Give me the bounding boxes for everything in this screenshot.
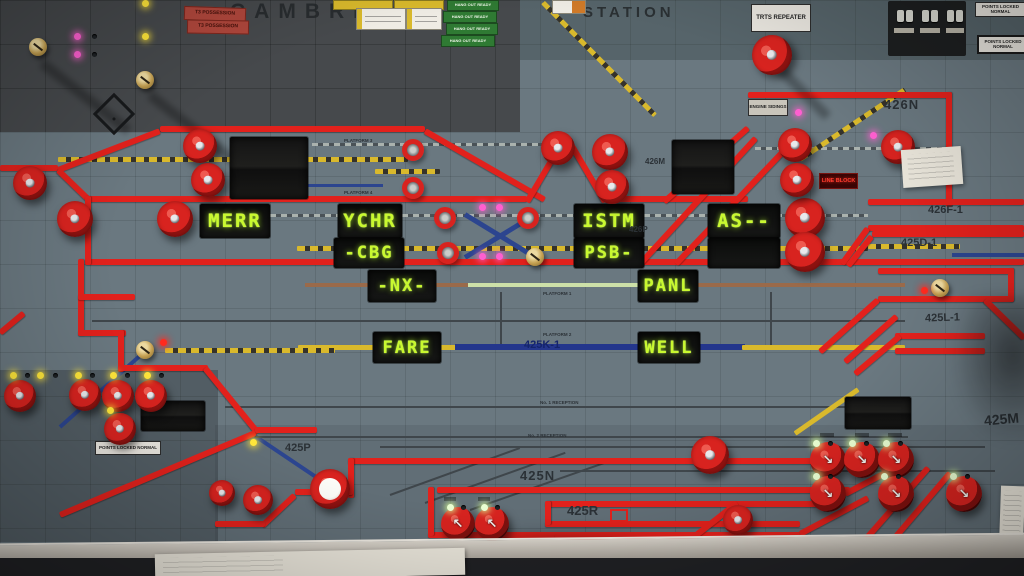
unlit-indicator: [461, 505, 466, 510]
unlit-indicator: [159, 373, 164, 378]
points-arrow-icon: ↖: [453, 517, 464, 532]
red-track-segment: [118, 365, 208, 371]
route-ring-switch[interactable]: [402, 177, 424, 199]
unlit-indicator: [965, 474, 970, 479]
indicator-led-magenta: [496, 204, 503, 211]
describer-code: YCHR: [343, 210, 397, 232]
indicator-led-yellow: [75, 372, 82, 379]
pulled-signal-knob[interactable]: [310, 469, 350, 509]
unlit-indicator: [864, 441, 869, 446]
points-arrow-icon: ↘: [891, 487, 902, 502]
points-arrow-icon: ↘: [857, 453, 868, 468]
hang-out-ready-plate-1: HANG OUT READY: [447, 0, 499, 11]
route-label-425p: 425P: [285, 442, 311, 454]
points-arrow-icon: ↘: [823, 453, 834, 468]
red-track-segment: [78, 294, 135, 300]
block-switch-button[interactable]: [931, 10, 938, 22]
below-desk: [0, 558, 1024, 576]
red-track-segment: [545, 501, 551, 525]
points-switch-knob[interactable]: ↖: [441, 507, 475, 541]
switch-label-tag: [478, 497, 490, 501]
points-locked-plate-1: POINTS LOCKED NORMAL: [975, 2, 1024, 17]
red-track-segment: [57, 128, 161, 172]
console-label-strip: [894, 28, 914, 33]
red-track-segment: [348, 458, 860, 464]
indicator-led-magenta: [479, 253, 486, 260]
unlit-indicator: [896, 474, 901, 479]
points-switch-knob[interactable]: ↘: [810, 476, 846, 512]
describer-code: ISTM: [582, 210, 636, 232]
top-strip-shade: [0, 0, 1024, 60]
card-tab: [357, 9, 362, 29]
describer-code: -NX-: [378, 276, 427, 296]
route-label-426f1: 426F-1: [928, 204, 963, 216]
unlit-indicator: [125, 373, 130, 378]
signal-switch-knob[interactable]: [104, 413, 136, 445]
indicator-led-yellow: [142, 0, 149, 7]
indicator-led-yellow: [37, 372, 44, 379]
indicator-led-magenta: [479, 204, 486, 211]
red-track-segment: [1008, 268, 1014, 302]
switch-label-tag: [444, 497, 456, 501]
indicator-led-yellow: [110, 372, 117, 379]
route-label-426n-top: 426N: [884, 97, 919, 112]
unlit-indicator: [25, 373, 30, 378]
platform-label-3: PLATFORM 3: [344, 138, 372, 143]
route-label-425m: 425M: [983, 410, 1019, 429]
indicator-led-yellow: [10, 372, 17, 379]
handwriting: [907, 151, 955, 180]
block-switch-button[interactable]: [947, 10, 954, 22]
track-line: [92, 320, 905, 322]
platform-label-1: PLATFORM 1: [543, 291, 571, 296]
indicator-led-green: [950, 473, 957, 480]
describer-code: PANL: [644, 276, 693, 296]
route-label-425r: 425R: [567, 503, 598, 518]
siding-line: [255, 436, 908, 438]
signal-switch-knob[interactable]: [4, 380, 36, 412]
red-track-segment: [748, 92, 952, 98]
red-track-segment: [895, 333, 985, 339]
train-describer-display-as: AS--: [708, 204, 780, 238]
train-describer-display-fare: FARE: [373, 332, 441, 363]
red-track-segment: [545, 521, 800, 527]
signal-switch-knob[interactable]: [183, 129, 217, 163]
indicator-led-green: [447, 504, 454, 511]
signal-switch-knob[interactable]: [135, 380, 167, 412]
points-arrow-icon: ↘: [891, 453, 902, 468]
switch-label-tag: [820, 433, 834, 437]
points-arrow-icon: ↘: [823, 487, 834, 502]
unlit-indicator: [92, 52, 97, 57]
unlit-indicator: [828, 441, 833, 446]
unlit-indicator: [495, 505, 500, 510]
signal-switch-knob[interactable]: [69, 379, 101, 411]
card-orange-half: [572, 1, 585, 13]
indicator-led-magenta: [74, 33, 81, 40]
signal-switch-knob[interactable]: [13, 166, 47, 200]
route-label-425k1: 425K-1: [524, 339, 560, 351]
indicator-led-green: [481, 504, 488, 511]
describer-code: MERR: [208, 210, 262, 232]
signal-switch-knob[interactable]: [191, 163, 225, 197]
reminder-card: [356, 8, 406, 30]
signal-switch-knob[interactable]: [243, 485, 273, 515]
red-track-segment: [428, 487, 434, 536]
route-label-425d1: 425D-1: [901, 237, 937, 249]
points-arrow-icon: ↘: [959, 487, 970, 502]
reception-label-2: No. 2 RECEPTION: [528, 433, 567, 438]
hang-out-ready-plate-4: HANG OUT READY: [441, 35, 495, 47]
red-track-segment: [853, 334, 902, 377]
unlit-indicator: [92, 34, 97, 39]
card-tab: [407, 9, 412, 29]
train-describer-display-well: WELL: [638, 332, 700, 363]
legend-diamond-dot: [112, 117, 116, 121]
train-describer-display-merr: MERR: [200, 204, 270, 238]
track-line-425k1: [455, 344, 745, 350]
block-switch-console: [888, 1, 966, 56]
key-switch[interactable]: [136, 71, 154, 89]
indicator-led-green: [813, 440, 820, 447]
train-describer-display-nx: -NX-: [368, 270, 436, 302]
signal-switch-knob[interactable]: [723, 505, 753, 535]
unlit-indicator: [828, 474, 833, 479]
route-label-426p: 426P: [629, 225, 648, 234]
unlit-indicator: [90, 373, 95, 378]
track-line: [165, 348, 335, 353]
indicator-led-yellow: [142, 33, 149, 40]
indicator-led-green: [849, 440, 856, 447]
signal-switch-knob[interactable]: [209, 480, 235, 506]
train-describer-display-ychr: YCHR: [338, 204, 402, 238]
key-switch[interactable]: [136, 341, 154, 359]
red-track-segment: [437, 487, 850, 493]
small-label-card: [552, 0, 586, 14]
red-track-segment: [215, 521, 265, 527]
indicator-led-yellow: [107, 407, 114, 414]
indicator-led-yellow: [250, 439, 257, 446]
block-switch-button[interactable]: [897, 10, 904, 22]
describer-code: FARE: [383, 338, 432, 358]
route-label-425n: 425N: [520, 468, 555, 483]
block-switch-button[interactable]: [922, 10, 929, 22]
track-line: [312, 143, 552, 146]
line-block-indicator: LINE BLOCK: [819, 173, 858, 189]
engine-sidings-plate: ENGINE SIDINGS: [748, 99, 788, 116]
indicator-led-red: [921, 287, 928, 294]
indicator-led-magenta: [795, 109, 802, 116]
indicator-led-green: [881, 473, 888, 480]
trts-repeater-plate: TRTS REPEATER: [751, 4, 811, 32]
train-describer-display-panl: PANL: [638, 270, 698, 302]
signal-switch-knob[interactable]: [780, 163, 814, 197]
red-track-segment: [872, 231, 1024, 237]
signal-switch-knob[interactable]: [157, 201, 193, 237]
card-writing: [365, 12, 401, 26]
red-route-marker: [610, 509, 628, 522]
switch-label-tag: [855, 433, 869, 437]
station-name-right: STATION: [583, 4, 675, 21]
signal-switch-knob[interactable]: [541, 131, 575, 165]
describer-code: WELL: [645, 338, 694, 358]
block-switch-button[interactable]: [956, 10, 963, 22]
points-locked-plate-bottom: POINTS LOCKED NORMAL: [95, 441, 161, 455]
red-track-segment: [878, 268, 1014, 274]
track-link: [500, 292, 502, 347]
red-track-segment: [255, 427, 317, 433]
track-line: [468, 283, 640, 287]
unlit-indicator: [898, 441, 903, 446]
blank-display-module: [230, 137, 308, 199]
red-track-segment: [424, 128, 547, 202]
route-ring-switch[interactable]: [402, 139, 424, 161]
indicator-led-magenta: [870, 132, 877, 139]
hang-out-ready-plate-3: HANG OUT READY: [446, 23, 498, 35]
paper-note: [901, 146, 964, 188]
key-switch[interactable]: [931, 279, 949, 297]
blank-display-module: [845, 397, 911, 429]
platform-label-2: PLATFORM 2: [543, 332, 571, 337]
track-link: [770, 292, 772, 347]
console-label-strip: [920, 28, 940, 33]
key-switch[interactable]: [29, 38, 47, 56]
card-writing: [415, 12, 437, 26]
platform-label-4: PLATFORM 4: [344, 190, 372, 195]
describer-code: -CBG: [345, 243, 394, 263]
indicator-led-magenta: [496, 253, 503, 260]
track-line: [375, 169, 440, 174]
train-describer-display-cbg: -CBG: [334, 238, 404, 268]
red-track-segment: [878, 296, 1014, 302]
route-label-425l1: 425L-1: [925, 311, 960, 324]
track-line: [952, 253, 1024, 257]
indicator-led-red: [160, 339, 167, 346]
console-label-strip: [946, 28, 964, 33]
indicator-led-magenta: [74, 51, 81, 58]
points-switch-knob[interactable]: ↘: [844, 442, 880, 478]
train-describer-display-psb: PSB-: [574, 238, 644, 268]
describer-code: AS--: [717, 210, 771, 232]
red-track-segment: [605, 196, 748, 202]
possession-plate-2: T3 POSSESSION: [187, 19, 249, 34]
route-label-426m: 426M: [645, 157, 665, 166]
train-describer-display-blank: [708, 238, 780, 268]
handwriting: [163, 556, 283, 576]
hang-out-ready-plate-2: HANG OUT READY: [443, 11, 497, 23]
signal-switch-knob[interactable]: [592, 134, 628, 170]
red-track-segment: [85, 259, 1024, 265]
describer-code: PSB-: [585, 243, 634, 263]
reception-label-1: No. 1 RECEPTION: [540, 400, 579, 405]
route-ring-switch[interactable]: [517, 207, 539, 229]
signal-box-panel: CAMBRIDGE STATION T3 POSSESSION T3 POSSE…: [0, 0, 1024, 576]
blank-display-module: [672, 140, 734, 194]
route-ring-switch[interactable]: [434, 207, 456, 229]
unlit-indicator: [53, 373, 58, 378]
indicator-led-green: [813, 473, 820, 480]
points-switch-knob[interactable]: ↘: [946, 476, 982, 512]
reminder-card: [406, 8, 442, 30]
siding-line: [225, 406, 905, 408]
red-track-segment: [0, 311, 26, 335]
red-track-segment: [983, 298, 1024, 341]
red-track-segment: [895, 348, 985, 354]
track-line: [298, 184, 383, 187]
key-switch[interactable]: [526, 248, 544, 266]
indicator-led-green: [883, 440, 890, 447]
signal-switch-knob[interactable]: [102, 380, 134, 412]
signal-switch-knob[interactable]: [778, 128, 812, 162]
signal-switch-knob[interactable]: [57, 201, 93, 237]
indicator-led-yellow: [144, 372, 151, 379]
signal-switch-knob[interactable]: [785, 232, 825, 272]
block-switch-button[interactable]: [906, 10, 913, 22]
switch-label-tag: [888, 433, 902, 437]
points-locked-plate-2: POINTS LOCKED NORMAL: [977, 35, 1024, 54]
red-track-segment: [203, 366, 261, 435]
signal-switch-knob[interactable]: [691, 436, 729, 474]
points-arrow-icon: ↖: [487, 517, 498, 532]
signal-switch-knob[interactable]: [595, 170, 629, 204]
points-switch-knob[interactable]: ↘: [878, 476, 914, 512]
points-switch-knob[interactable]: ↖: [475, 507, 509, 541]
route-ring-switch[interactable]: [437, 242, 459, 264]
